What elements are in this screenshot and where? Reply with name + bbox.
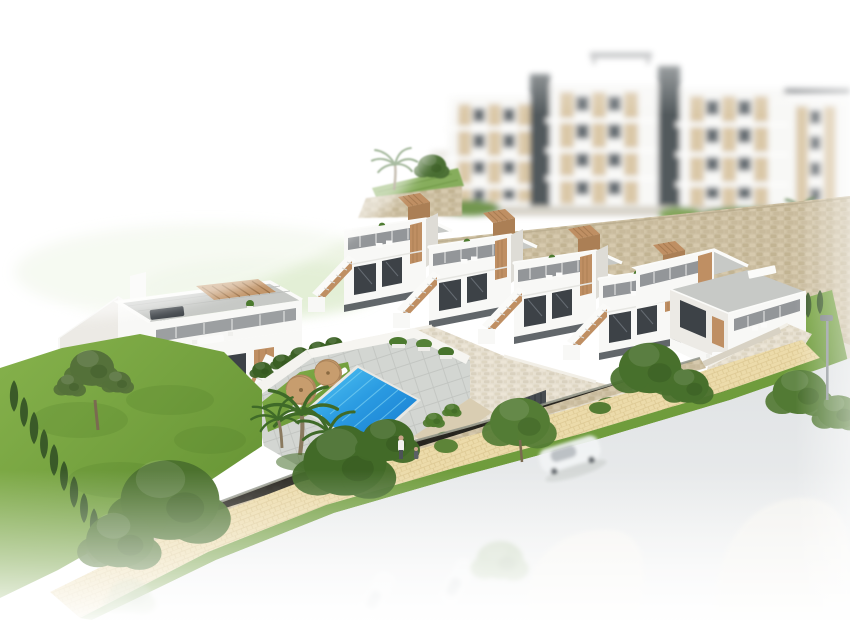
- vignette-bottom: [0, 470, 850, 620]
- verge-shrub: [434, 439, 458, 453]
- verge-shrub: [589, 402, 611, 414]
- render-canvas: [0, 0, 850, 620]
- vignette-right: [795, 0, 850, 620]
- architectural-render-scene: Aerial 3D architectural render of a coas…: [0, 0, 850, 620]
- pedestrian-child: [414, 447, 419, 459]
